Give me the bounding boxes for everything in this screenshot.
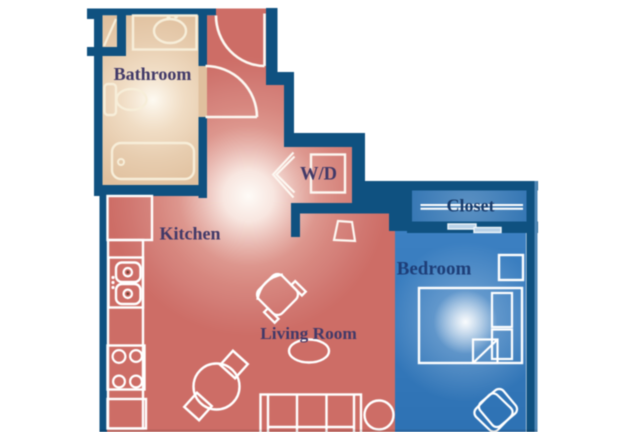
svg-text:Bathroom: Bathroom	[114, 64, 192, 84]
svg-text:Bedroom: Bedroom	[397, 259, 472, 280]
svg-text:Living Room: Living Room	[260, 324, 357, 343]
svg-text:Kitchen: Kitchen	[160, 224, 221, 244]
svg-text:Closet: Closet	[447, 196, 495, 216]
svg-text:W/D: W/D	[300, 165, 337, 185]
